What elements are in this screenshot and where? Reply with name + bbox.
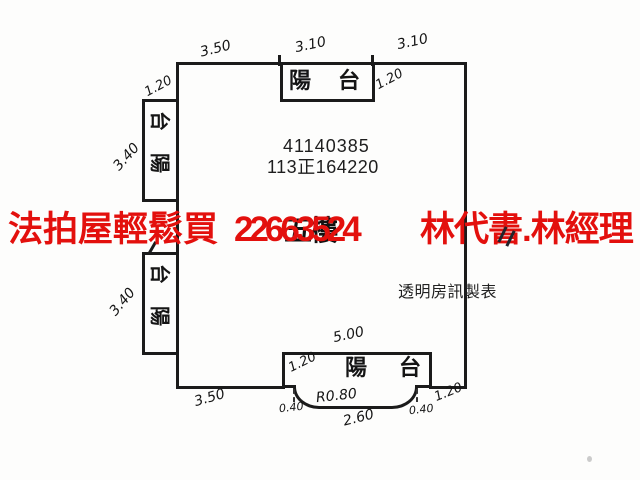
dim-left-upper-length: 3.40 [111, 141, 142, 174]
dim-top-balcony-depth: 1.20 [374, 67, 406, 92]
dim-bottom-right: 1.20 [433, 381, 465, 404]
balcony-ul-char1: 台 [149, 111, 169, 131]
dim-curve-radius: R0.80 [315, 387, 357, 405]
credit-label: 透明房訊製表 [398, 285, 497, 301]
balcony-left-lower-label: 台 陽 [149, 264, 169, 326]
dim-curve-side-left: 0.40 [278, 401, 304, 415]
dim-bottom-left: 3.50 [193, 387, 227, 409]
dim-bottom-balcony-width: 5.00 [332, 325, 365, 345]
dim-top-right: 3.10 [396, 32, 429, 52]
balcony-ll-char1: 台 [149, 264, 169, 284]
watermark-phone: 22663524 [234, 212, 358, 247]
balcony-top-char2: 台 [338, 70, 360, 92]
dim-curve-side-right: 0.40 [408, 403, 434, 417]
watermark-slogan: 法拍屋輕鬆買 [8, 212, 218, 247]
balcony-bottom-char2: 台 [399, 357, 421, 379]
ink-mark-right [501, 226, 519, 248]
dim-left-upper-width: 1.20 [143, 74, 175, 99]
balcony-bottom-char1: 陽 [345, 357, 367, 379]
balcony-top-char1: 陽 [289, 70, 311, 92]
dim-curve-width: 2.60 [342, 407, 376, 428]
case-number: 113正164220 [267, 158, 379, 176]
scan-speck [587, 456, 592, 462]
balcony-ll-char2: 陽 [149, 306, 169, 326]
dim-left-lower-length: 3.40 [107, 286, 138, 319]
balcony-top-label: 陽 台 [289, 70, 360, 92]
balcony-ul-char2: 陽 [149, 153, 169, 173]
balcony-bottom-label: 陽 台 [345, 357, 421, 379]
floorplan-scan: 陽 台 陽 台 台 陽 台 陽 3.50 3.10 3.10 1.20 1.20… [0, 0, 640, 480]
curve-tick-right [416, 389, 418, 402]
wall-bottom-left [176, 386, 285, 389]
dim-top-middle: 3.10 [294, 35, 327, 55]
building-number: 41140385 [283, 137, 370, 155]
balcony-left-upper-label: 台 陽 [149, 111, 169, 173]
dim-top-left: 3.50 [199, 38, 233, 59]
watermark-names: 林代書.林經理 [420, 212, 633, 247]
